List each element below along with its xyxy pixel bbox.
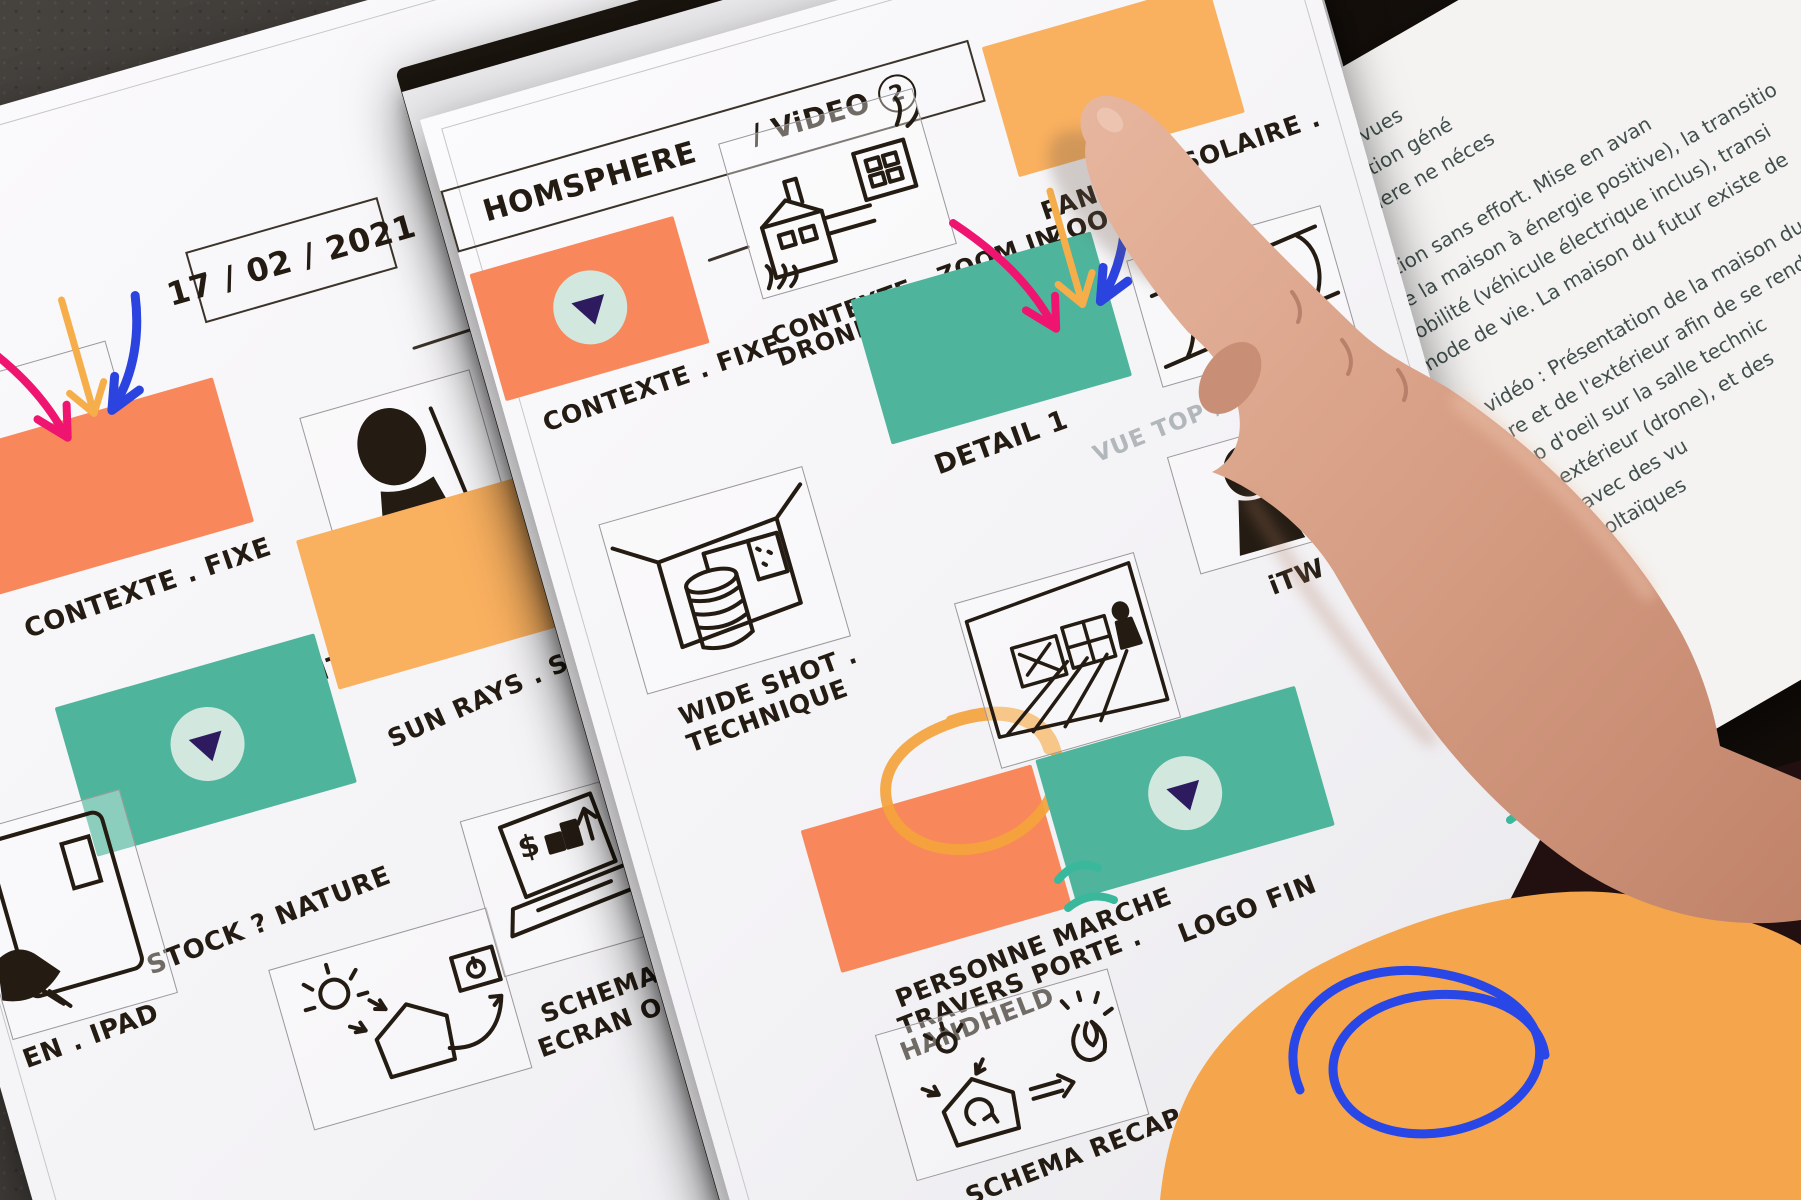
- house-sun-sketch: [269, 909, 531, 1130]
- photo-scene: 17 / 02 / 2021 CONTEXTE . FIXE ITW . FIX…: [0, 0, 1801, 1200]
- dollar-icon: $: [514, 827, 544, 866]
- pointing-hand: [990, 40, 1801, 940]
- play-button-icon: [544, 262, 636, 354]
- orange-arrow-icon: [62, 300, 93, 408]
- index-finger: [1080, 96, 1801, 923]
- date-box: 17 / 02 / 2021: [185, 197, 398, 323]
- play-triangle-icon: [189, 730, 229, 765]
- house-sun-cell-frame: [268, 907, 532, 1130]
- date-text: 17 / 02 / 2021: [163, 206, 421, 313]
- play-triangle-icon: [571, 294, 611, 329]
- board-title: HOMSPHERE: [479, 134, 701, 228]
- dash-mark: [707, 245, 750, 262]
- play-button-icon: [162, 698, 254, 790]
